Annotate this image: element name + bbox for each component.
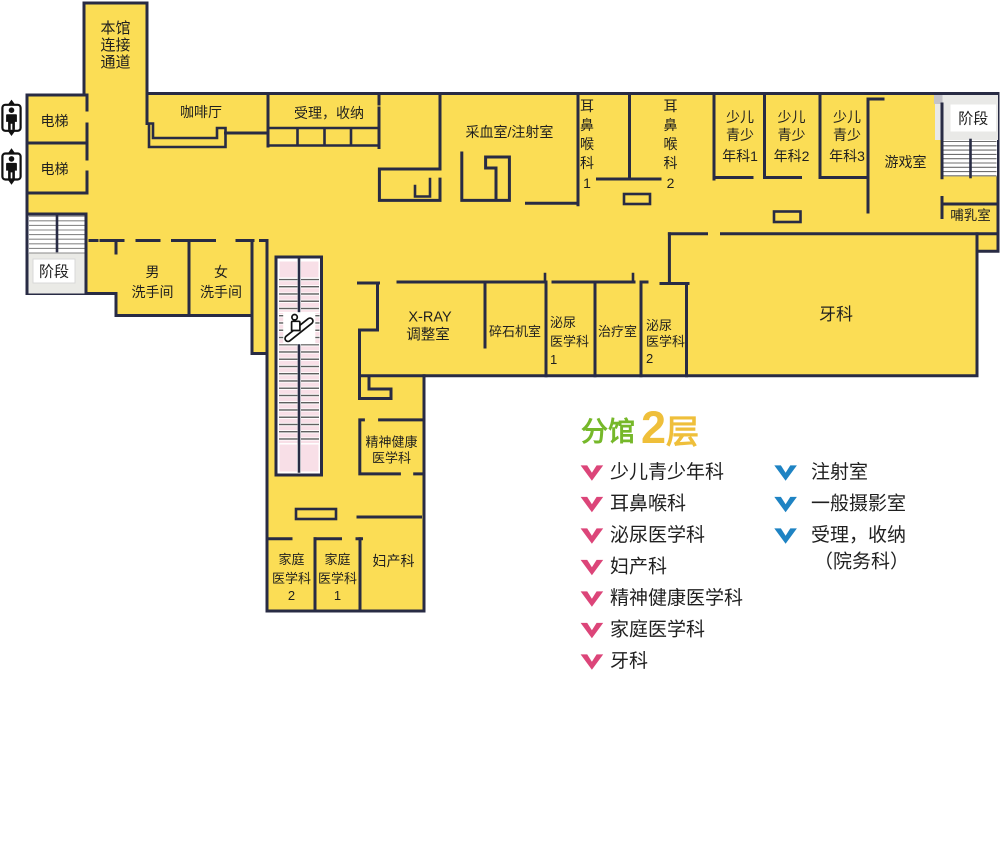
- svg-text:牙科: 牙科: [819, 305, 853, 324]
- svg-text:医学科: 医学科: [272, 571, 311, 586]
- svg-text:牙科: 牙科: [610, 650, 648, 672]
- svg-text:受理，收纳: 受理，收纳: [811, 524, 906, 546]
- svg-text:哺乳室: 哺乳室: [950, 207, 991, 223]
- svg-text:X-RAY: X-RAY: [408, 310, 452, 326]
- svg-text:耳: 耳: [580, 98, 594, 114]
- svg-text:咖啡厅: 咖啡厅: [180, 104, 222, 120]
- svg-text:电梯: 电梯: [41, 161, 69, 177]
- svg-text:妇产科: 妇产科: [373, 553, 415, 569]
- svg-text:2: 2: [667, 175, 675, 191]
- svg-text:医学科: 医学科: [550, 334, 589, 349]
- svg-text:家庭医学科: 家庭医学科: [610, 619, 705, 641]
- svg-text:精神健康医学科: 精神健康医学科: [610, 587, 743, 609]
- svg-text:家庭: 家庭: [324, 552, 350, 567]
- svg-text:（院务科）: （院务科）: [814, 551, 909, 573]
- svg-text:少儿: 少儿: [778, 109, 806, 125]
- svg-text:少儿: 少儿: [833, 109, 861, 125]
- svg-text:青少: 青少: [833, 127, 861, 143]
- svg-text:青少: 青少: [726, 127, 754, 143]
- svg-text:年科1: 年科1: [722, 148, 758, 164]
- svg-text:1: 1: [334, 588, 341, 603]
- svg-text:家庭: 家庭: [278, 552, 304, 567]
- svg-text:年科2: 年科2: [774, 148, 810, 164]
- svg-text:通道: 通道: [100, 54, 130, 71]
- svg-text:电梯: 电梯: [41, 113, 69, 129]
- svg-text:医学科: 医学科: [646, 334, 685, 349]
- svg-text:1: 1: [583, 175, 591, 191]
- svg-text:泌尿: 泌尿: [550, 315, 576, 330]
- svg-text:科: 科: [580, 155, 594, 171]
- svg-text:层: 层: [666, 413, 699, 450]
- svg-text:采血室/注射室: 采血室/注射室: [466, 124, 554, 140]
- svg-text:妇产科: 妇产科: [610, 556, 667, 578]
- svg-text:一般摄影室: 一般摄影室: [811, 493, 906, 515]
- svg-text:泌尿医学科: 泌尿医学科: [610, 524, 705, 546]
- svg-text:青少: 青少: [778, 127, 806, 143]
- svg-text:喉: 喉: [580, 136, 594, 152]
- svg-text:男: 男: [146, 264, 160, 280]
- svg-text:鼻: 鼻: [664, 117, 678, 133]
- svg-text:泌尿: 泌尿: [646, 318, 672, 333]
- svg-text:耳: 耳: [664, 98, 678, 114]
- svg-text:洗手间: 洗手间: [200, 284, 242, 300]
- svg-text:碎石机室: 碎石机室: [489, 324, 541, 339]
- svg-text:1: 1: [550, 352, 557, 367]
- svg-text:2: 2: [288, 588, 295, 603]
- svg-text:精神健康: 精神健康: [365, 435, 417, 450]
- svg-text:医学科: 医学科: [318, 571, 357, 586]
- svg-text:鼻: 鼻: [580, 117, 594, 133]
- svg-text:医学科: 医学科: [372, 451, 411, 466]
- svg-text:本馆: 本馆: [100, 20, 130, 37]
- svg-text:女: 女: [214, 264, 228, 280]
- svg-text:喉: 喉: [664, 136, 678, 152]
- svg-text:受理，收纳: 受理，收纳: [294, 105, 364, 121]
- svg-text:阶段: 阶段: [958, 111, 988, 128]
- svg-text:少儿青少年科: 少儿青少年科: [610, 461, 724, 483]
- svg-text:2: 2: [646, 351, 653, 366]
- svg-text:分馆: 分馆: [581, 416, 635, 447]
- svg-text:少儿: 少儿: [726, 109, 754, 125]
- svg-text:调整室: 调整室: [406, 327, 450, 344]
- svg-text:耳鼻喉科: 耳鼻喉科: [610, 493, 686, 515]
- svg-text:注射室: 注射室: [811, 461, 868, 483]
- svg-text:阶段: 阶段: [39, 264, 69, 281]
- svg-text:年科3: 年科3: [829, 148, 865, 164]
- svg-text:治疗室: 治疗室: [598, 324, 637, 339]
- svg-text:连接: 连接: [100, 37, 130, 54]
- svg-text:2: 2: [641, 402, 666, 453]
- svg-text:游戏室: 游戏室: [885, 154, 927, 170]
- svg-text:洗手间: 洗手间: [132, 284, 174, 300]
- svg-text:科: 科: [664, 155, 678, 171]
